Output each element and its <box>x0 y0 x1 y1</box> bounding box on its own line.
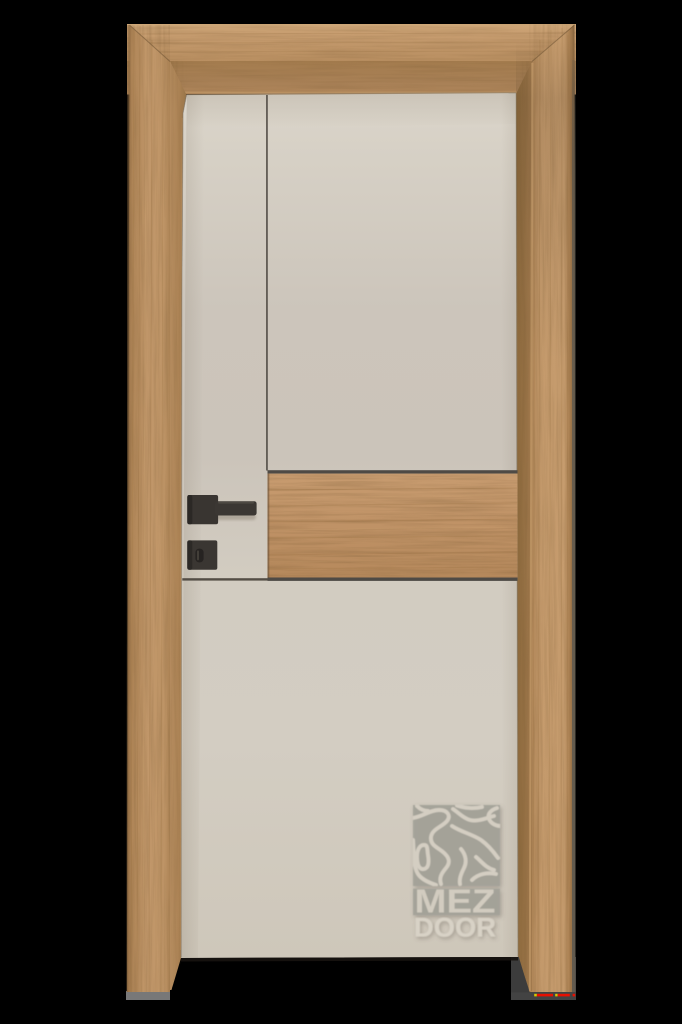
svg-text:DOOR: DOOR <box>414 913 496 943</box>
